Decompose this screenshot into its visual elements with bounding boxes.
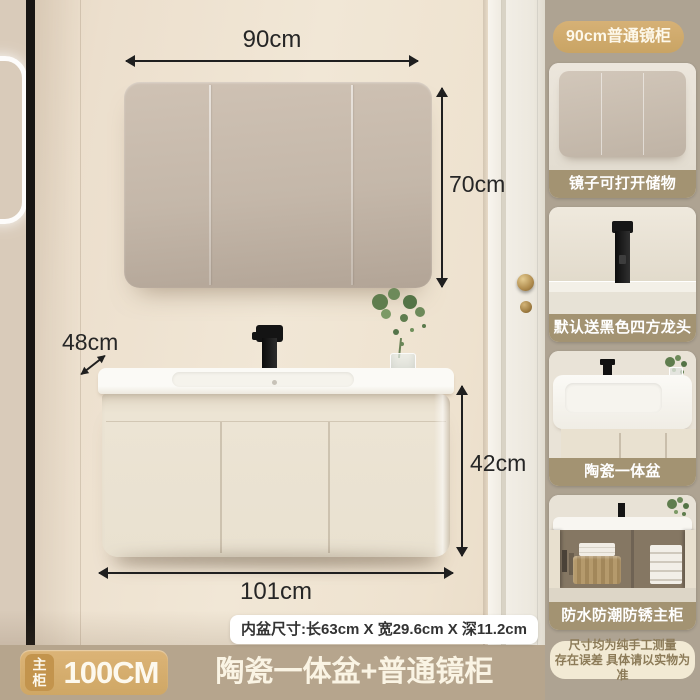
thumb-cabinet	[561, 429, 696, 458]
feature-caption: 镜子可打开储物	[549, 170, 696, 198]
dim-arrow-cabinet-height	[461, 386, 463, 556]
dim-mirror-width: 90cm	[126, 26, 418, 54]
thumb-counter	[553, 517, 692, 530]
dim-cabinet-height: 42cm	[470, 450, 526, 477]
ceramic-basin-thumb	[549, 351, 696, 458]
mirror-cabinet-thumb	[549, 63, 696, 170]
plant	[372, 294, 388, 310]
thumb-cabinet-seam	[665, 433, 667, 458]
feature-card-main-cabinet: 防水防潮防锈主柜	[549, 495, 696, 630]
thumb-basin	[553, 375, 692, 429]
side-mirror-reflection	[0, 0, 26, 645]
thumb-floor	[549, 292, 696, 314]
black-faucet-thumb	[549, 207, 696, 314]
cabinet-side-panel	[434, 394, 450, 557]
basin-recess	[172, 372, 354, 387]
bottom-bar: 主柜 100CM 陶瓷一体盆+普通镜柜	[0, 645, 545, 700]
mirror-door-seam	[209, 85, 211, 285]
door-panel-line	[537, 0, 538, 645]
disclaimer-line2: 存在误差 具体请以实物为准	[550, 653, 695, 683]
dim-arrow-mirror-height	[441, 88, 443, 287]
product-image: 90cm 70cm 48cm 42cm 101cm 内盆尺寸:长63cm X 宽…	[0, 0, 700, 700]
thumb-floor	[549, 588, 696, 602]
door-lock	[520, 301, 532, 313]
thumb-towels-right	[650, 545, 682, 584]
thumb-mirror-seam	[643, 73, 645, 155]
dim-cabinet-width: 101cm	[99, 578, 453, 606]
measurement-disclaimer: 尺寸均为纯手工测量 存在误差 具体请以实物为准	[550, 641, 695, 679]
thumb-cabinet-seam	[619, 433, 621, 458]
feature-card-mirror: 镜子可打开储物	[549, 63, 696, 198]
thumb-mirror-body	[559, 71, 686, 157]
thumb-cabinet-divider	[631, 530, 634, 588]
feature-card-faucet: 默认送黑色四方龙头	[549, 207, 696, 342]
vanity-cabinet	[102, 394, 450, 557]
faucet-spout	[252, 332, 261, 340]
cabinet-door-seam	[328, 422, 330, 553]
drain	[272, 380, 277, 385]
cabinet-seam	[106, 421, 446, 422]
door-frame	[488, 0, 502, 645]
thumb-faucet	[618, 503, 625, 517]
size-badge-label: 主柜	[25, 654, 54, 691]
mirror-frame-edge	[26, 0, 35, 645]
thumb-mirror-seam	[601, 73, 603, 155]
feature-caption: 陶瓷一体盆	[549, 458, 696, 486]
feature-cards: 镜子可打开储物 默认送黑色四方龙头	[549, 63, 696, 630]
sidebar-header-badge: 90cm普通镜柜	[553, 21, 684, 53]
wall-corner	[35, 0, 81, 645]
thumb-plant	[665, 357, 675, 367]
feature-sidebar: 90cm普通镜柜 镜子可打开储物	[545, 0, 700, 700]
dim-mirror-height: 70cm	[449, 171, 505, 198]
thumb-basin-recess	[565, 383, 662, 413]
basin-size-note: 内盆尺寸:长63cm X 宽29.6cm X 深11.2cm	[230, 615, 538, 644]
led-mirror-glow	[0, 56, 26, 224]
feature-caption: 默认送黑色四方龙头	[549, 314, 696, 342]
feature-card-basin: 陶瓷一体盆	[549, 351, 696, 486]
dim-arrow-cabinet-width	[99, 572, 453, 574]
bathroom-scene: 90cm 70cm 48cm 42cm 101cm	[0, 0, 545, 645]
product-title: 陶瓷一体盆+普通镜柜	[172, 645, 537, 700]
cabinet-shadow	[112, 554, 440, 566]
thumb-basket	[573, 556, 621, 584]
thumb-bottles	[562, 550, 567, 572]
thumb-towels-left	[579, 543, 615, 556]
thumb-faucet-detail	[619, 255, 626, 264]
dim-arrow-mirror-width	[126, 60, 418, 62]
cabinet-door-seam	[220, 422, 222, 553]
thumb-open-door-right	[685, 530, 696, 588]
mirror-door-seam	[351, 85, 353, 285]
disclaimer-line1: 尺寸均为纯手工测量	[550, 638, 695, 653]
ceramic-countertop	[98, 368, 454, 394]
feature-caption: 防水防潮防锈主柜	[549, 602, 696, 630]
size-badge-value: 100CM	[54, 655, 168, 691]
size-badge: 主柜 100CM	[20, 650, 168, 695]
door-handle	[517, 274, 534, 291]
mirror-cabinet	[124, 82, 432, 288]
thumb-plant	[667, 499, 677, 509]
dim-counter-depth: 48cm	[62, 329, 118, 356]
thumb-open-door-left	[549, 530, 560, 588]
main-cabinet-open-thumb	[549, 495, 696, 602]
door	[506, 0, 545, 645]
